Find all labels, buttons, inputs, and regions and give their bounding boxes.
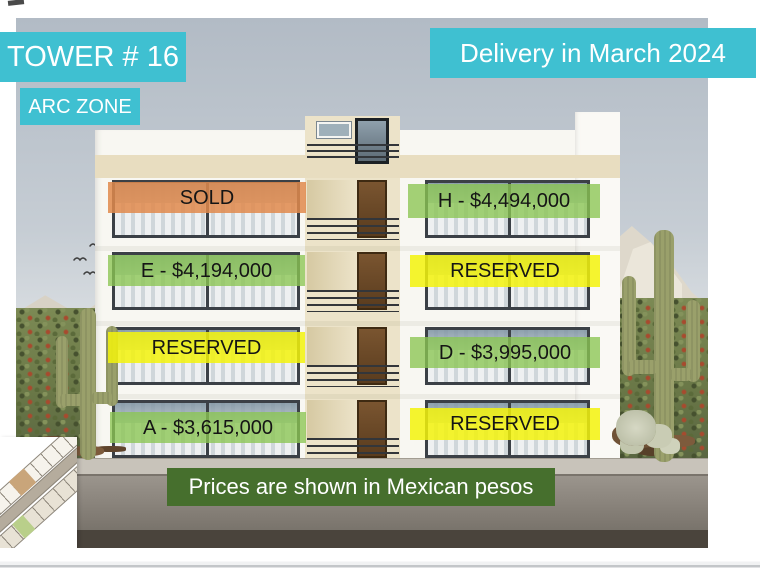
penthouse-railing [307,144,399,160]
balcony-railing [307,365,399,387]
unit-status-floor3-right: RESERVED [410,255,600,287]
balcony-railing [307,218,399,240]
unit-status-floor3-left: E - $4,194,000 [108,255,305,286]
slide-canvas: TOWER # 16 ARC ZONE Delivery in March 20… [0,0,760,570]
zone-label: ARC ZONE [20,88,140,125]
cholla-cactus [616,410,656,446]
unit-status-floor1-left: A - $3,615,000 [110,412,306,443]
street-foreground [16,530,708,548]
site-plan-drawing [0,437,77,548]
stairwell-wall [307,252,357,290]
unit-status-floor2-right: D - $3,995,000 [410,337,600,368]
unit-status-floor2-left: RESERVED [108,332,305,363]
floor-slab [95,321,620,326]
balcony-railing [307,290,399,312]
unit-status-floor1-right: RESERVED [410,408,600,440]
delivery-label: Delivery in March 2024 [430,28,756,78]
unit-status-floor4-right: H - $4,494,000 [408,184,600,218]
balcony-railing [307,438,399,460]
floor-slab [95,394,620,399]
prices-note: Prices are shown in Mexican pesos [167,468,555,506]
corner-mark [8,0,24,6]
tower-label: TOWER # 16 [0,32,186,82]
penthouse-window [317,122,351,138]
floor-slab [95,246,620,251]
stairwell-wall [307,400,357,438]
stairwell-wall [307,327,357,365]
unit-status-floor4-left: SOLD [108,182,306,213]
stairwell-wall [307,180,357,218]
bottom-edge-strip [0,548,760,570]
site-plan-thumbnail [0,437,77,548]
